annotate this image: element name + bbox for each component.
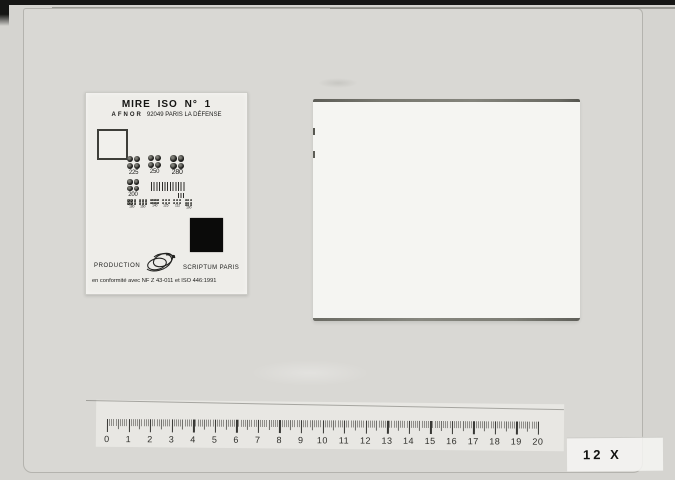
ruler-tick xyxy=(213,420,214,427)
ruler-tick xyxy=(404,421,405,428)
ruler-number: 11 xyxy=(339,435,349,445)
ruler-tick xyxy=(359,421,360,428)
ruler-tick xyxy=(426,421,427,428)
ruler-tick xyxy=(269,420,270,430)
ruler-tick xyxy=(316,420,317,427)
ruler-tick xyxy=(514,421,515,428)
ruler-tick xyxy=(208,420,209,427)
ruler-number: 7 xyxy=(255,435,261,445)
ruler-tick xyxy=(400,421,401,428)
ruler-tick xyxy=(353,421,354,428)
ruler-number: 18 xyxy=(489,436,500,446)
dot-pattern xyxy=(173,199,181,204)
ruler-ticks xyxy=(107,419,541,436)
ruler-tick xyxy=(178,419,179,426)
pattern-label: 280 xyxy=(172,170,183,176)
ruler-tick xyxy=(180,419,181,426)
ruler-tick xyxy=(415,421,416,428)
resolution-group-280: 280 xyxy=(170,155,184,176)
ruler-tick xyxy=(217,420,218,427)
production-label: PRODUCTION xyxy=(94,263,140,269)
ruler-tick xyxy=(185,419,186,426)
ruler-tick xyxy=(200,420,201,427)
ruler-tick xyxy=(122,419,123,426)
ruler-tick xyxy=(531,422,532,429)
resolution-group-200: 200 xyxy=(127,179,139,198)
document-edge-mark xyxy=(313,151,315,158)
ruler-numbers: 01234567891011121314151617181920 xyxy=(107,434,547,449)
ruler-tick xyxy=(271,420,272,427)
ruler-tick xyxy=(241,420,242,427)
ruler-tick xyxy=(434,421,435,428)
ruler-tick xyxy=(221,420,222,427)
ruler-tick xyxy=(488,421,489,428)
ruler-tick xyxy=(329,420,330,427)
frame-top-line-double xyxy=(330,8,675,9)
ruler-number: 17 xyxy=(468,436,479,446)
document-bottom-edge xyxy=(313,318,580,321)
ruler-tick xyxy=(135,419,136,426)
ruler-tick xyxy=(286,420,287,427)
ruler: 01234567891011121314151617181920 xyxy=(107,419,547,452)
ruler-tick xyxy=(462,421,463,431)
ruler-tick xyxy=(529,422,530,429)
ruler-tick xyxy=(348,420,349,427)
dot-pattern xyxy=(148,155,161,168)
resolution-group-250: 250 xyxy=(148,155,161,175)
ruler-tick xyxy=(383,421,384,428)
ruler-tick xyxy=(230,420,231,427)
ruler-tick xyxy=(497,421,498,428)
resolution-group-100: 100 xyxy=(184,199,193,211)
ruler-tick xyxy=(137,419,138,426)
ruler-tick xyxy=(338,420,339,427)
ruler-tick xyxy=(381,421,382,428)
ruler-tick xyxy=(157,419,158,426)
scan-smudge xyxy=(318,78,358,88)
ruler-number: 14 xyxy=(403,436,414,446)
brand-label: SCRIPTUM PARIS xyxy=(183,265,239,271)
scan-left-black-edge xyxy=(0,0,9,26)
ruler-tick xyxy=(538,422,539,435)
ruler-tick xyxy=(374,421,375,428)
ruler-tick xyxy=(458,421,459,428)
ruler-tick xyxy=(318,420,319,427)
ruler-tick xyxy=(475,421,476,428)
ruler-tick xyxy=(406,421,407,428)
ruler-tick xyxy=(419,421,420,431)
ruler-tick xyxy=(228,420,229,427)
ruler-number: 15 xyxy=(425,436,436,446)
ruler-tick xyxy=(148,419,149,426)
ruler-tick xyxy=(249,420,250,427)
ruler-tick xyxy=(491,421,492,428)
ruler-tick xyxy=(161,419,162,429)
ruler-number: 19 xyxy=(511,436,522,446)
ruler-tick xyxy=(493,421,494,428)
ruler-tick xyxy=(424,421,425,428)
ruler-tick xyxy=(238,420,239,427)
ruler-tick xyxy=(503,421,504,428)
ruler-tick xyxy=(363,421,364,428)
ruler-tick xyxy=(510,421,511,428)
ruler-tick xyxy=(124,419,125,426)
dot-pattern xyxy=(127,156,140,169)
ruler-tick xyxy=(331,420,332,427)
ruler-tick xyxy=(396,421,397,428)
pattern-label: 140 xyxy=(152,205,157,207)
ruler-tick xyxy=(299,420,300,427)
ruler-tick xyxy=(378,421,379,428)
ruler-tick xyxy=(292,420,293,427)
ruler-tick xyxy=(523,422,524,429)
ruler-number: 8 xyxy=(276,435,282,445)
ruler-tick xyxy=(152,419,153,426)
ruler-tick xyxy=(350,420,351,427)
ruler-tick xyxy=(113,419,114,426)
ruler-tick xyxy=(245,420,246,427)
ruler-tick xyxy=(262,420,263,427)
ruler-tick xyxy=(521,422,522,429)
pattern-label: 112 xyxy=(175,205,180,207)
ruler-tick xyxy=(413,421,414,428)
magnification-label: 12 X xyxy=(583,447,622,462)
ruler-tick xyxy=(234,420,235,427)
ruler-tick xyxy=(118,419,119,429)
ruler-tick xyxy=(357,421,358,428)
ruler-tick xyxy=(525,422,526,429)
ruler-tick xyxy=(439,421,440,428)
ruler-tick xyxy=(111,419,112,426)
ruler-tick xyxy=(282,420,283,427)
ruler-number: 9 xyxy=(298,435,304,445)
ruler-tick xyxy=(527,422,528,432)
ruler-tick xyxy=(191,420,192,427)
ruler-tick xyxy=(417,421,418,428)
ruler-tick xyxy=(394,421,395,428)
ruler-tick xyxy=(165,419,166,426)
ruler-tick xyxy=(310,420,311,427)
ruler-tick xyxy=(294,420,295,427)
ruler-tick xyxy=(450,421,451,428)
pattern-label: 160 xyxy=(141,206,146,208)
ruler-tick xyxy=(225,420,226,430)
ruler-number: 12 xyxy=(360,436,371,446)
ruler-tick xyxy=(454,421,455,428)
scan-top-black-edge xyxy=(0,0,675,5)
ruler-tick xyxy=(120,419,121,426)
ruler-tick xyxy=(167,419,168,426)
ruler-tick xyxy=(480,421,481,428)
ruler-tick xyxy=(486,421,487,428)
pattern-label: 200 xyxy=(128,192,137,198)
ruler-tick xyxy=(389,421,390,428)
dot-pattern xyxy=(127,179,139,191)
pattern-label: 225 xyxy=(129,170,138,176)
ruler-number: 1 xyxy=(126,434,132,444)
ruler-tick xyxy=(445,421,446,428)
ruler-tick xyxy=(303,420,304,427)
ruler-tick xyxy=(534,422,535,429)
ruler-tick xyxy=(251,420,252,427)
ruler-tick xyxy=(441,421,442,431)
ruler-tick xyxy=(266,420,267,427)
small-resolution-row: 180 160 140 125 112 100 xyxy=(127,199,193,211)
ruler-tick xyxy=(206,420,207,427)
ruler-tick xyxy=(432,421,433,428)
ruler-tick xyxy=(370,421,371,428)
ruler-number: 3 xyxy=(169,434,175,444)
ruler-tick xyxy=(232,420,233,427)
ruler-tick xyxy=(460,421,461,428)
ruler-tick xyxy=(447,421,448,428)
ruler-tick xyxy=(116,419,117,426)
ruler-tick xyxy=(204,420,205,430)
pattern-label: 100 xyxy=(186,207,191,209)
ruler-tick xyxy=(402,421,403,428)
ruler-tick xyxy=(219,420,220,427)
ruler-tick xyxy=(484,421,485,431)
line-pattern-tail xyxy=(178,193,184,198)
ruler-tick xyxy=(126,419,127,426)
ruler-tick xyxy=(342,420,343,427)
ruler-tick xyxy=(519,422,520,429)
ruler-tick xyxy=(141,419,142,426)
ruler-tick xyxy=(197,420,198,427)
black-reference-square xyxy=(190,218,223,252)
ruler-tick xyxy=(131,419,132,426)
pattern-label: 250 xyxy=(150,169,159,175)
ruler-tick xyxy=(465,421,466,428)
mire-iso-test-card: MIRE ISO N° 1 AFNOR92049 PARIS LA DÉFENS… xyxy=(85,92,248,295)
ruler-tick xyxy=(478,421,479,428)
ruler-tick xyxy=(368,421,369,428)
document-edge-mark xyxy=(313,128,315,135)
ruler-tick xyxy=(284,420,285,427)
ruler-tick xyxy=(391,421,392,428)
ruler-tick xyxy=(471,421,472,428)
ruler-tick xyxy=(499,421,500,428)
ruler-tick xyxy=(501,421,502,428)
pattern-label: 180 xyxy=(129,206,134,208)
ruler-tick xyxy=(109,419,110,426)
ruler-tick xyxy=(307,420,308,427)
blank-document xyxy=(313,99,580,321)
ruler-tick xyxy=(275,420,276,427)
dot-pattern xyxy=(185,199,192,206)
ruler-number: 0 xyxy=(104,434,110,444)
ruler-tick xyxy=(320,420,321,427)
ruler-tick xyxy=(482,421,483,428)
ruler-tick xyxy=(195,420,196,427)
ruler-tick xyxy=(174,419,175,426)
dot-pattern xyxy=(127,199,136,205)
card-subtitle-org: AFNOR xyxy=(112,112,143,118)
resolution-group-112: 112 xyxy=(173,199,182,211)
magnification-patch: 12 X xyxy=(567,437,663,472)
ruler-number: 13 xyxy=(381,436,392,446)
resolution-group-140: 140 xyxy=(150,199,159,211)
document-top-edge xyxy=(313,99,580,102)
ruler-tick xyxy=(133,419,134,426)
ruler-tick xyxy=(355,421,356,431)
resolution-group-125: 125 xyxy=(161,199,170,211)
ruler-tick xyxy=(312,420,313,430)
ruler-tick xyxy=(256,420,257,427)
ruler-tick xyxy=(398,421,399,431)
pattern-label: 125 xyxy=(163,205,168,207)
ruler-tick xyxy=(346,420,347,427)
ruler-tick xyxy=(385,421,386,428)
ruler-tick xyxy=(139,419,140,429)
ruler-tick xyxy=(456,421,457,428)
ruler-tick xyxy=(144,419,145,426)
ruler-number: 10 xyxy=(317,435,328,445)
ruler-number: 4 xyxy=(190,435,196,445)
scan-smudge xyxy=(250,360,370,386)
ruler-tick xyxy=(288,420,289,427)
ruler-number: 20 xyxy=(532,437,543,447)
microfilm-scan-photo: MIRE ISO N° 1 AFNOR92049 PARIS LA DÉFENS… xyxy=(0,0,675,480)
ruler-tick xyxy=(290,420,291,430)
ruler-tick xyxy=(467,421,468,428)
ruler-tick xyxy=(176,419,177,426)
ruler-tick xyxy=(243,420,244,427)
resolution-group-225: 225 xyxy=(127,156,140,176)
dot-pattern xyxy=(162,199,170,204)
scriptum-swirl-logo-icon xyxy=(142,249,180,280)
ruler-tick xyxy=(335,420,336,427)
ruler-number: 5 xyxy=(212,435,218,445)
ruler-tick xyxy=(264,420,265,427)
ruler-tick xyxy=(277,420,278,427)
ruler-tick xyxy=(210,420,211,427)
ruler-tick xyxy=(422,421,423,428)
ruler-tick xyxy=(333,420,334,430)
ruler-tick xyxy=(182,419,183,429)
card-subtitle-address: 92049 PARIS LA DÉFENSE xyxy=(147,112,222,118)
ruler-tick xyxy=(247,420,248,430)
dot-pattern xyxy=(170,155,184,169)
ruler-tick xyxy=(202,420,203,427)
ruler-tick xyxy=(325,420,326,427)
ruler-tick xyxy=(305,420,306,427)
ruler-tick xyxy=(253,420,254,427)
ruler-tick xyxy=(372,421,373,428)
ruler-number: 6 xyxy=(233,435,239,445)
ruler-tick xyxy=(512,421,513,428)
ruler-tick xyxy=(361,421,362,428)
dot-pattern xyxy=(139,199,148,205)
ruler-tick xyxy=(297,420,298,427)
ruler-tick xyxy=(187,419,188,426)
ruler-tick xyxy=(169,419,170,426)
ruler-tick xyxy=(508,421,509,428)
white-reference-square xyxy=(97,129,128,160)
ruler-tick xyxy=(327,420,328,427)
ruler-tick xyxy=(428,421,429,428)
ruler-tick xyxy=(154,419,155,426)
line-pattern-row xyxy=(151,182,185,191)
ruler-tick xyxy=(260,420,261,427)
ruler-tick xyxy=(146,419,147,426)
card-subtitle: AFNOR92049 PARIS LA DÉFENSE xyxy=(86,112,247,118)
ruler-tick xyxy=(163,419,164,426)
ruler-number: 16 xyxy=(446,436,457,446)
ruler-tick xyxy=(159,419,160,426)
ruler-tick xyxy=(469,421,470,428)
ruler-tick xyxy=(411,421,412,428)
ruler-number: 2 xyxy=(147,434,153,444)
ruler-tick xyxy=(314,420,315,427)
ruler-tick xyxy=(223,420,224,427)
ruler-tick xyxy=(443,421,444,428)
resolution-group-160: 160 xyxy=(138,199,147,211)
ruler-tick xyxy=(340,420,341,427)
ruler-tick xyxy=(273,420,274,427)
resolution-group-180: 180 xyxy=(127,199,136,211)
ruler-tick xyxy=(506,421,507,431)
card-title: MIRE ISO N° 1 xyxy=(86,99,247,110)
ruler-tick xyxy=(189,420,190,427)
ruler-tick xyxy=(376,421,377,431)
ruler-tick xyxy=(536,422,537,429)
conformity-text: en conformité avec NF Z 43-011 et ISO 44… xyxy=(92,278,236,284)
ruler-tick xyxy=(437,421,438,428)
